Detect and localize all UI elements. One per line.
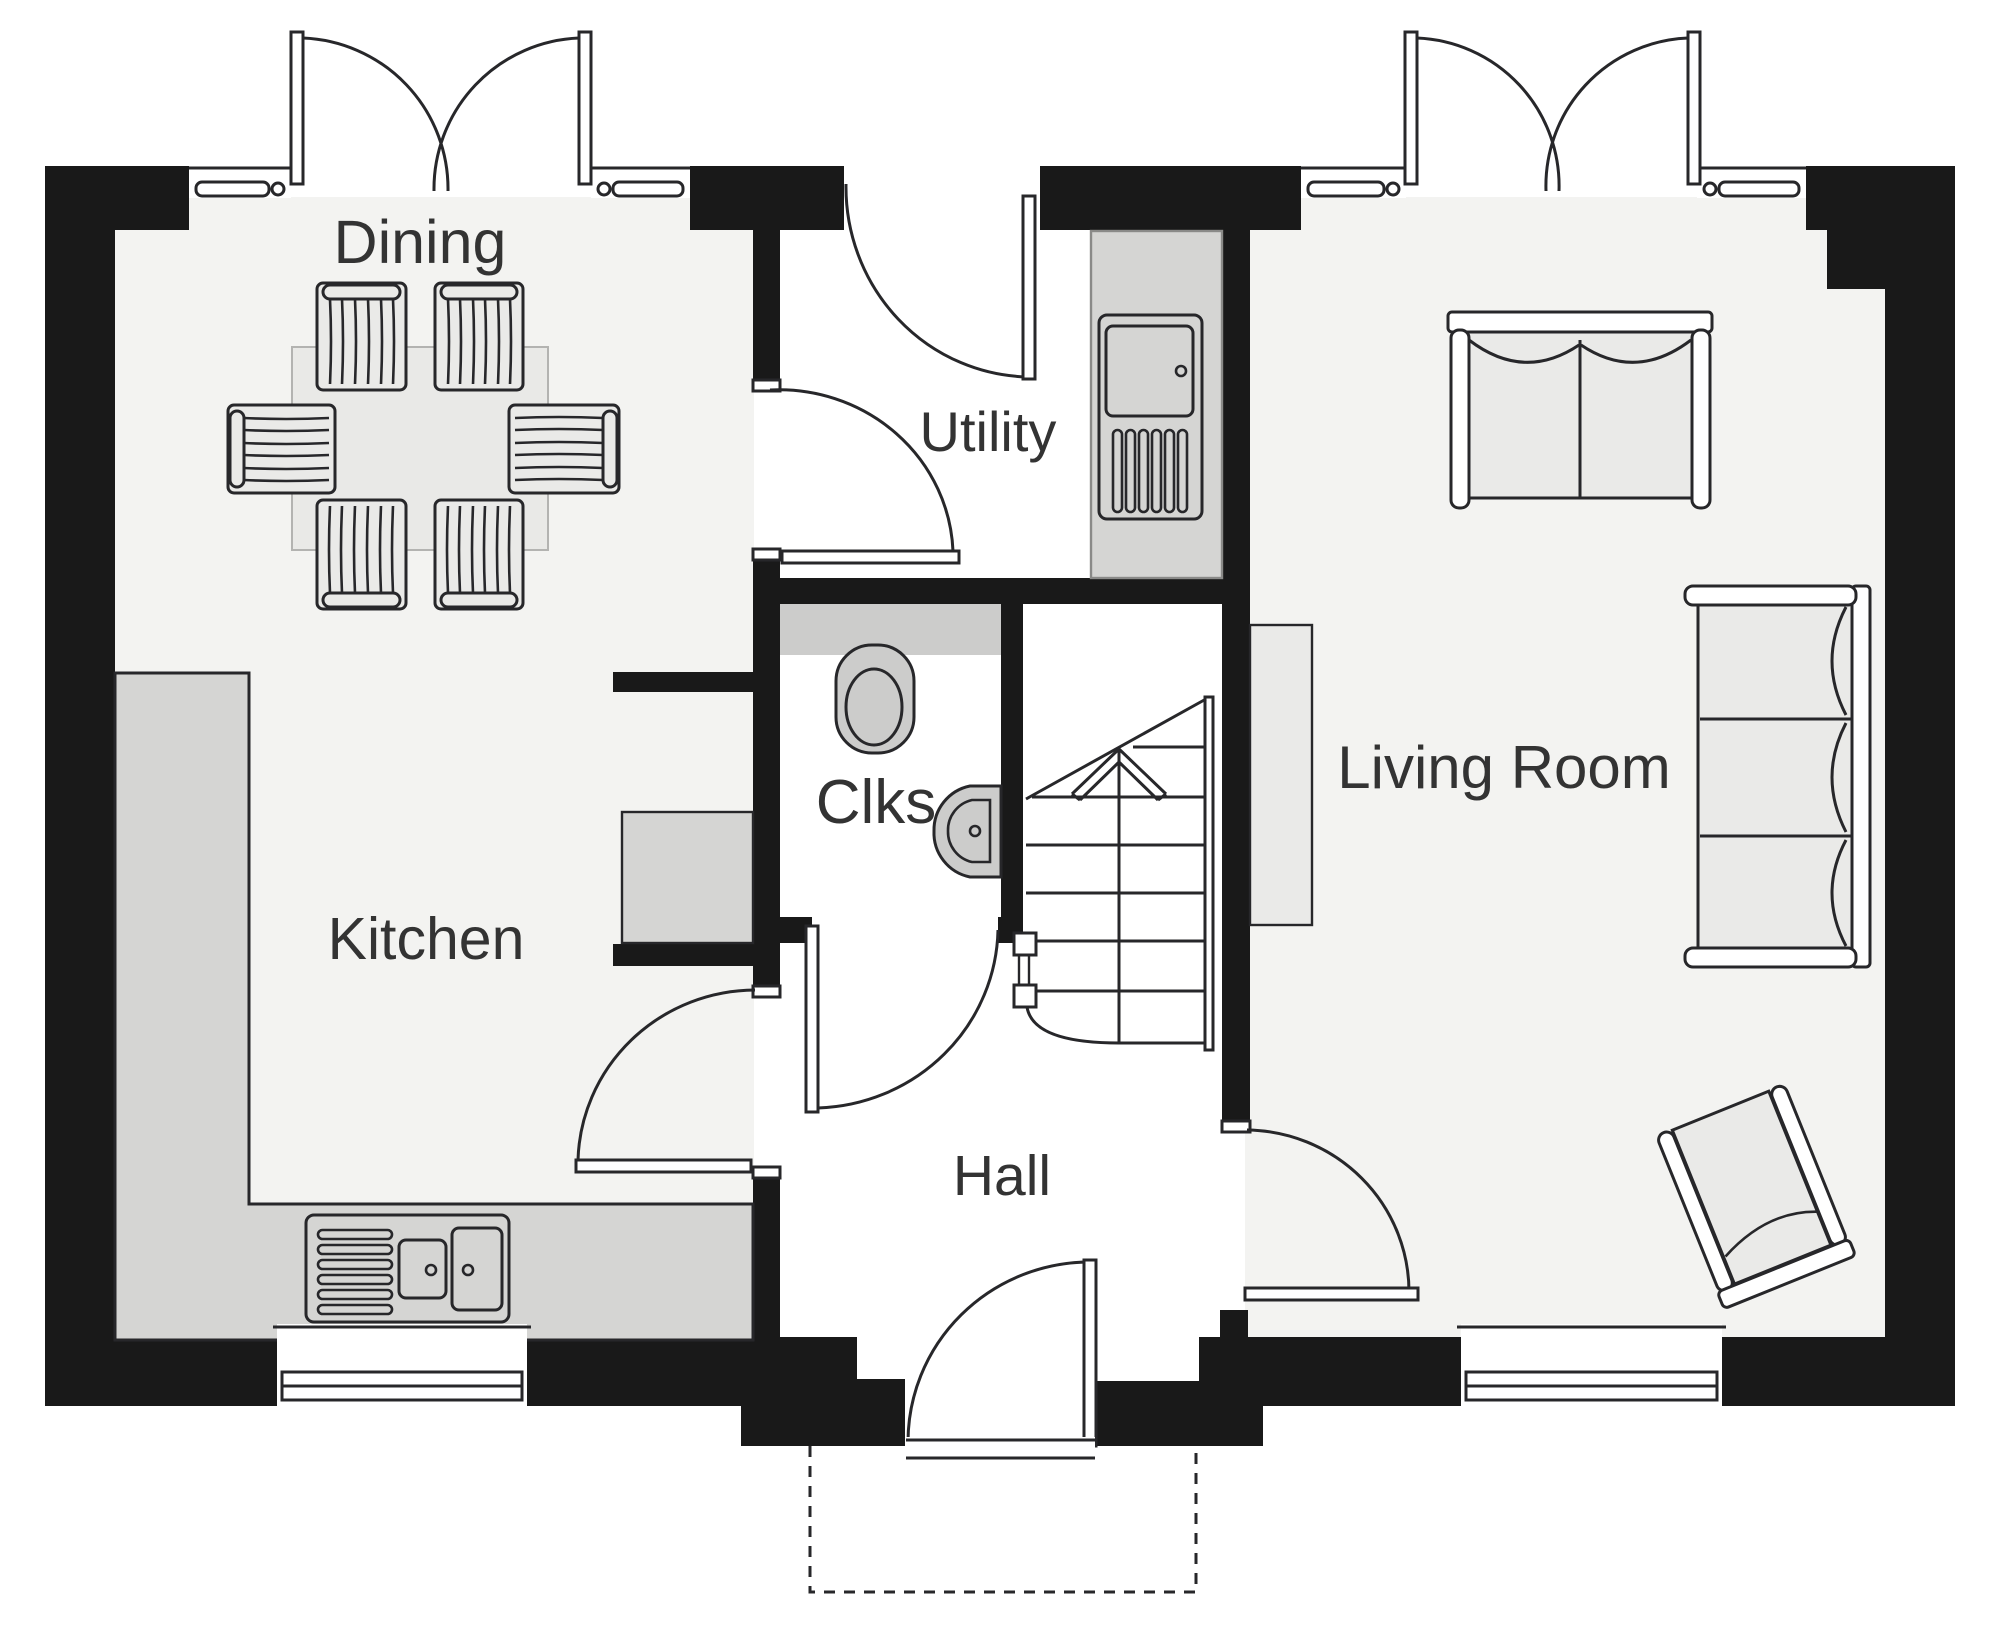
svg-text:Dining: Dining [334,208,507,276]
svg-text:Hall: Hall [953,1144,1051,1208]
svg-text:Kitchen: Kitchen [328,906,525,972]
svg-text:Living Room: Living Room [1337,734,1671,801]
svg-text:Utility: Utility [920,400,1057,463]
svg-text:Clks: Clks [816,768,937,837]
